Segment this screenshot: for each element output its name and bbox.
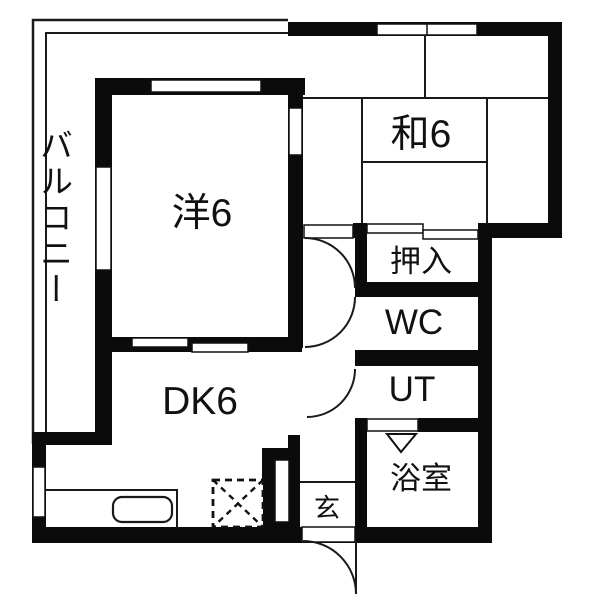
closet-fusuma-right-panel	[423, 230, 478, 239]
walls	[32, 22, 562, 543]
toilet-label: WC	[367, 301, 461, 343]
utility-door-arc	[307, 369, 355, 417]
bathroom-folding-door-triangle-icon	[387, 434, 416, 452]
entrance-cabinet-slot	[275, 460, 289, 522]
washer-space-box	[213, 480, 263, 527]
hall-north-wall-stub-west	[288, 223, 303, 238]
japanese-room-door-arc	[305, 238, 355, 288]
kitchen-sink	[113, 497, 172, 522]
closet-south-wall	[355, 282, 492, 297]
entrance-door-arc	[303, 541, 356, 594]
service-column-east-wall	[478, 223, 492, 543]
western-room-north-window	[151, 80, 261, 92]
entrance-west-wall	[288, 435, 300, 543]
western-room-label: 洋6	[150, 187, 254, 239]
entrance-door-threshold	[302, 527, 355, 542]
hall-to-japanese-door-opening	[304, 225, 353, 238]
bathroom-label: 浴室	[367, 459, 475, 497]
utility-bath-divider-stub	[355, 418, 367, 432]
closet-fusuma-left-panel	[367, 224, 423, 233]
floor-plan: バルコニー 洋6 和6 DK6 押入 WC UT 浴室 玄	[0, 0, 600, 600]
western-japanese-sliding-opening	[289, 108, 302, 155]
wc-door-arc	[305, 297, 355, 347]
bathroom-door-opening	[367, 419, 418, 431]
japanese-room-label: 和6	[369, 109, 473, 159]
entrance-label: 玄	[306, 492, 348, 524]
balcony-label: バルコニー	[34, 108, 74, 328]
dk-western-sliding-left-panel	[132, 338, 188, 347]
japanese-room-east-wall	[548, 22, 562, 237]
utility-label: UT	[365, 368, 459, 410]
wc-utility-divider-wall	[355, 350, 492, 366]
entrance-bath-divider-wall	[355, 432, 367, 543]
kitchen-west-window	[33, 467, 45, 517]
dining-kitchen-label: DK6	[138, 377, 262, 425]
closet-label: 押入	[369, 242, 473, 280]
floor-plan-drawing	[0, 0, 600, 600]
utility-bath-divider-wall	[418, 418, 492, 432]
dk-western-sliding-right-panel	[192, 343, 248, 352]
western-room-west-window	[96, 167, 111, 270]
